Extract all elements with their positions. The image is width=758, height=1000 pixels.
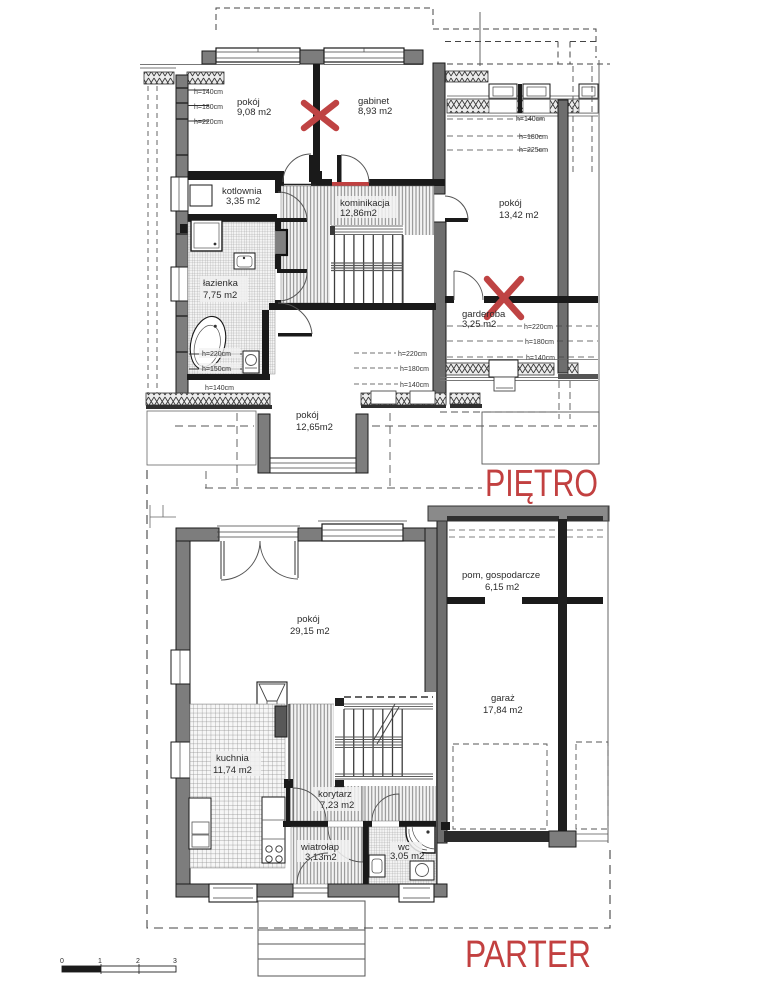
svg-text:2: 2	[136, 958, 140, 965]
svg-text:korytarz: korytarz	[318, 789, 352, 800]
svg-text:garaż: garaż	[491, 693, 515, 704]
svg-text:h=140cm: h=140cm	[205, 385, 234, 392]
svg-text:h=220cm: h=220cm	[194, 119, 223, 126]
svg-text:17,84 m2: 17,84 m2	[483, 705, 523, 716]
svg-text:h=180cm: h=180cm	[400, 366, 429, 373]
svg-text:h=150cm: h=150cm	[202, 366, 231, 373]
svg-text:3,35 m2: 3,35 m2	[226, 196, 260, 207]
svg-text:h=220cm: h=220cm	[202, 351, 231, 358]
svg-text:13,42 m2: 13,42 m2	[499, 210, 539, 221]
svg-text:3,25 m2: 3,25 m2	[462, 319, 496, 330]
svg-text:pom, gospodarcze: pom, gospodarcze	[462, 570, 540, 581]
svg-text:0: 0	[60, 958, 64, 965]
svg-text:h=180cm: h=180cm	[519, 134, 548, 141]
svg-text:pokój: pokój	[296, 410, 319, 421]
svg-text:pokój: pokój	[499, 198, 522, 209]
svg-text:1: 1	[98, 958, 102, 965]
svg-text:3: 3	[173, 958, 177, 965]
svg-text:h=140cm: h=140cm	[194, 89, 223, 96]
svg-text:7,23 m2: 7,23 m2	[320, 800, 354, 811]
svg-text:h=180cm: h=180cm	[525, 339, 554, 346]
svg-text:12,65m2: 12,65m2	[296, 422, 333, 433]
svg-text:h=140cm: h=140cm	[526, 355, 555, 362]
svg-text:11,74 m2: 11,74 m2	[213, 765, 252, 776]
svg-text:pokój: pokój	[297, 614, 320, 625]
svg-text:PARTER: PARTER	[465, 934, 591, 976]
svg-text:3,05 m2: 3,05 m2	[390, 851, 424, 862]
svg-text:h=220cm: h=220cm	[398, 351, 427, 358]
svg-text:9,08 m2: 9,08 m2	[237, 107, 271, 118]
svg-text:łazienka: łazienka	[203, 278, 239, 289]
svg-text:12,86m2: 12,86m2	[340, 208, 377, 219]
svg-text:29,15 m2: 29,15 m2	[290, 626, 330, 637]
svg-text:6,15 m2: 6,15 m2	[485, 582, 519, 593]
svg-text:h=225cm: h=225cm	[519, 147, 548, 154]
svg-text:h=220cm: h=220cm	[524, 324, 553, 331]
svg-text:PIĘTRO: PIĘTRO	[485, 463, 598, 505]
svg-text:h=180cm: h=180cm	[194, 104, 223, 111]
svg-text:h=140cm: h=140cm	[516, 116, 545, 123]
svg-text:h=140cm: h=140cm	[400, 382, 429, 389]
svg-text:kuchnia: kuchnia	[216, 753, 249, 764]
svg-text:8,93 m2: 8,93 m2	[358, 106, 392, 117]
svg-text:7,75 m2: 7,75 m2	[203, 290, 237, 301]
